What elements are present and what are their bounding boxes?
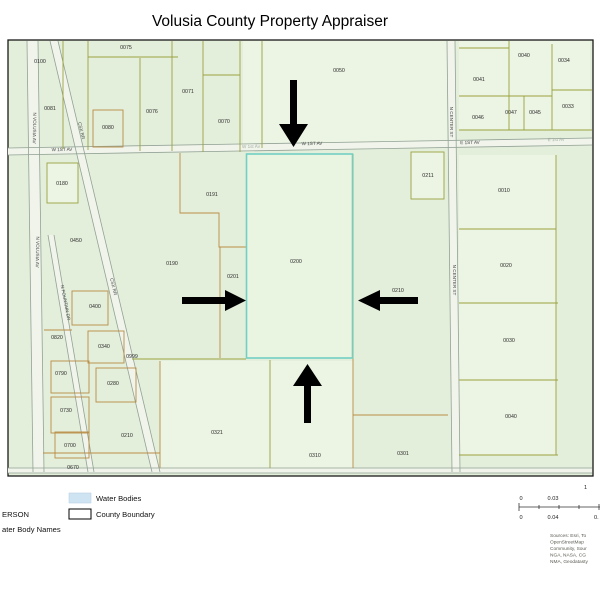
parcel-label-0999: 0999	[126, 354, 138, 360]
parcel-label-0041: 0041	[473, 77, 485, 83]
street-label-e-1st-av: E 1ST AV	[460, 140, 481, 145]
parcel-label-0301: 0301	[397, 451, 409, 457]
parcel-label-0400: 0400	[89, 304, 101, 310]
parcel-label-0050: 0050	[333, 68, 345, 74]
parcel-label-0080: 0080	[102, 125, 114, 131]
map-canvas[interactable]: 0100 0075 0071 0081 0076 0080 0070 0050 …	[8, 40, 593, 476]
parcel-label-0070: 0070	[218, 119, 230, 125]
legend-label-county-boundary: County Boundary	[96, 510, 155, 519]
sources-attribution: Sources: Esri, To OpenStreetMap Communit…	[550, 533, 588, 565]
parcel-label-0033: 0033	[562, 104, 574, 110]
sources-line-2: OpenStreetMap	[550, 540, 584, 546]
parcel-label-0670: 0670	[67, 465, 79, 471]
street-label-w-1st-av-faint: W 1st Av	[242, 144, 261, 149]
parcel-label-0200: 0200	[290, 259, 302, 265]
parcel-label-0040-se: 0040	[505, 414, 517, 420]
parcel-label-0075: 0075	[120, 45, 132, 51]
highlighted-parcel-0200[interactable]	[247, 154, 353, 358]
scale-top-tick-0: 0	[519, 496, 522, 502]
street-label-e-1st-av-faint: E 1st Av	[548, 137, 566, 142]
legend-cutoff-text-2: ater Body Names	[2, 525, 61, 534]
page-title: Volusia County Property Appraiser	[152, 13, 388, 30]
parcel-label-0210-sw: 0210	[121, 433, 133, 439]
parcel-label-0081: 0081	[44, 106, 56, 112]
parcel-label-0820: 0820	[51, 335, 63, 341]
parcel-label-0191: 0191	[206, 192, 218, 198]
sources-line-4: NGA, NASA, CG	[550, 553, 586, 559]
water-bodies-swatch	[69, 493, 91, 503]
parcel-label-0071: 0071	[182, 89, 194, 95]
parcel-label-0450: 0450	[70, 238, 82, 244]
street-label-n-center-st-2: N CENTER ST	[452, 265, 457, 296]
map-sheet: Volusia County Property Appraiser	[0, 0, 600, 600]
parcel-label-0321: 0321	[211, 430, 223, 436]
parcel-label-0047: 0047	[505, 110, 517, 116]
parcel-label-0700: 0700	[64, 443, 76, 449]
parcel-label-0211: 0211	[422, 173, 433, 179]
scale-line	[519, 503, 600, 511]
parcel-label-0790: 0790	[55, 371, 67, 377]
parcel-label-0020: 0020	[500, 263, 512, 269]
parcel-label-0190: 0190	[166, 261, 178, 267]
street-label-w-1st-av-left: W 1ST AV	[52, 147, 74, 152]
sources-line-3: Community, Sour	[550, 546, 587, 552]
parcel-label-0310: 0310	[309, 453, 321, 459]
parcel-label-0076: 0076	[146, 109, 158, 115]
legend-cutoff-text-1: ERSON	[2, 510, 29, 519]
parcel-label-0280: 0280	[107, 381, 119, 387]
street-label-n-center-st-1: N CENTER ST	[449, 107, 454, 138]
legend: Water Bodies County Boundary ERSON ater …	[2, 493, 155, 534]
parcel-label-0010: 0010	[498, 188, 510, 194]
scale-top-tick-1: 0.03	[548, 496, 559, 502]
scale-bottom-tick-2: 0.	[594, 515, 599, 521]
parcel-label-0034: 0034	[558, 58, 570, 64]
parcel-label-0180: 0180	[56, 181, 68, 187]
county-boundary-swatch	[69, 509, 91, 519]
scale-bar: 1 0 0.03 0 0.04 0.	[519, 485, 600, 521]
legend-label-water-bodies: Water Bodies	[96, 494, 142, 503]
parcel-label-0030: 0030	[503, 338, 515, 344]
scale-ratio: 1	[584, 485, 587, 491]
sources-line-1: Sources: Esri, To	[550, 533, 587, 539]
scale-bottom-tick-0: 0	[519, 515, 522, 521]
parcel-label-0046: 0046	[472, 115, 484, 121]
street-label-n-volusia-av-1: N VOLUSIA AV	[32, 112, 38, 144]
parcel-label-0340: 0340	[98, 344, 110, 350]
sources-line-5: NMA, Geodatasty	[550, 559, 588, 565]
parcel-label-0730: 0730	[60, 408, 72, 414]
scale-bottom-tick-1: 0.04	[548, 515, 559, 521]
parcel-label-0201: 0201	[227, 274, 239, 280]
street-label-w-1st-av-mid: W 1ST AV	[302, 141, 324, 146]
parcel-label-0040-ne: 0040	[518, 53, 530, 59]
parcel-label-0210-right: 0210	[392, 288, 404, 294]
street-label-n-volusia-av-2: N VOLUSIA AV	[35, 236, 41, 268]
parcel-label-0100: 0100	[34, 59, 46, 65]
parcel-label-0045: 0045	[529, 110, 541, 116]
